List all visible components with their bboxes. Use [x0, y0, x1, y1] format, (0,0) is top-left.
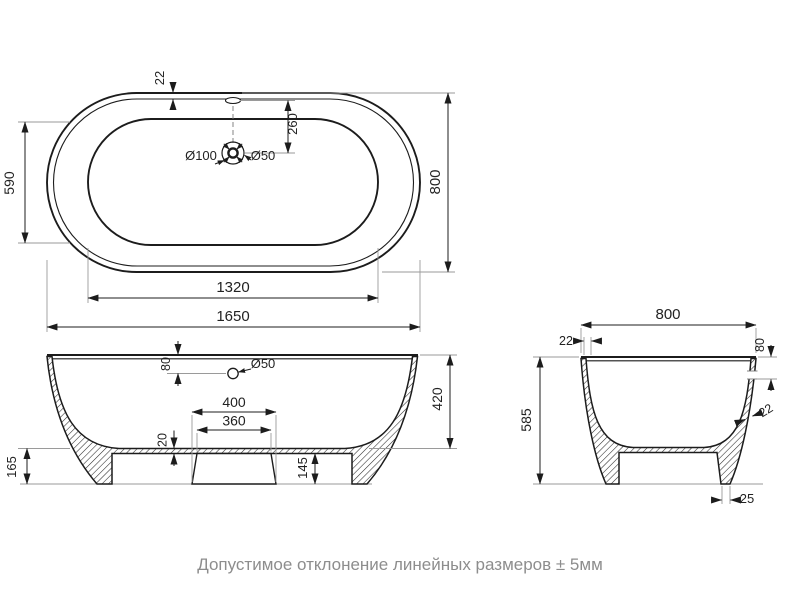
dim-label-side-height: 585	[518, 408, 534, 432]
dim-side-foot-width: 25	[711, 486, 754, 506]
tub-basin-edge	[88, 119, 378, 245]
dim-top-rim-width: 22	[152, 71, 173, 110]
dim-label-front-floor-thickness: 20	[156, 433, 170, 447]
side-view-shell	[581, 359, 756, 485]
dim-front-plinth-top: 360	[197, 413, 271, 452]
dim-label-front-overflow-offset: 80	[159, 357, 173, 371]
overflow-slot-icon	[226, 98, 241, 104]
dim-label-front-plinth-bottom: 400	[222, 394, 246, 410]
dim-label-side-rim-thickness: 22	[559, 334, 573, 348]
tub-inner-rim-edge	[54, 99, 414, 266]
overflow-hole-icon	[228, 368, 238, 378]
side-overflow-gap	[747, 371, 758, 379]
dim-top-drain-offset: 260	[240, 101, 300, 154]
dim-label-side-foot-width: 25	[740, 491, 754, 506]
dim-label-front-overflow-diameter: Ø50	[251, 356, 276, 371]
dim-label-front-plinth-top: 360	[222, 413, 246, 429]
dim-label-front-recess-height: 145	[295, 457, 310, 479]
dim-label-waste-diameter: Ø50	[251, 148, 276, 163]
dim-top-basin-length: 1320	[88, 248, 378, 303]
dim-label-top-basin-width: 590	[1, 171, 17, 195]
dim-label-top-basin-length: 1320	[216, 279, 249, 296]
front-view: 80 Ø50 400 360 20 145	[4, 341, 457, 484]
drawing-canvas: 22 260 Ø100 Ø50 800 1320	[0, 0, 795, 600]
dim-side-overflow-offset: 80	[753, 338, 777, 391]
dim-label-top-overall-width: 800	[427, 169, 444, 194]
dim-side-height: 585	[518, 357, 579, 484]
dim-top-overall-length: 1650	[47, 260, 420, 332]
side-view: 800 22 80 585 22	[518, 306, 777, 506]
dim-top-basin-width: 590	[1, 122, 70, 243]
dim-label-side-overflow-offset: 80	[753, 338, 767, 352]
technical-drawing-bathtub: 22 260 Ø100 Ø50 800 1320	[0, 0, 795, 600]
dim-side-rim-thickness: 22	[559, 334, 601, 355]
dim-label-side-overall-width: 800	[655, 306, 680, 323]
dim-front-recess-height: 145	[295, 454, 315, 485]
dim-front-overflow-offset: 80	[159, 341, 178, 386]
top-view: 22 260 Ø100 Ø50 800 1320	[1, 71, 455, 332]
tolerance-caption: Допустимое отклонение линейных размеров …	[197, 555, 603, 574]
dim-label-side-wall-thickness: 22	[756, 401, 775, 420]
dim-front-base-height: 165	[4, 449, 70, 485]
dim-side-overall-width: 800	[581, 306, 756, 353]
dim-label-top-drain-offset: 260	[285, 113, 300, 135]
drain-icon	[222, 142, 244, 164]
dim-label-front-inner-depth: 420	[429, 387, 445, 411]
dim-label-drain-diameter: Ø100	[185, 148, 217, 163]
dim-label-top-overall-length: 1650	[216, 308, 249, 325]
dim-label-top-rim-width: 22	[152, 71, 167, 85]
dim-label-front-base-height: 165	[4, 456, 19, 478]
front-center-foot	[192, 454, 276, 485]
